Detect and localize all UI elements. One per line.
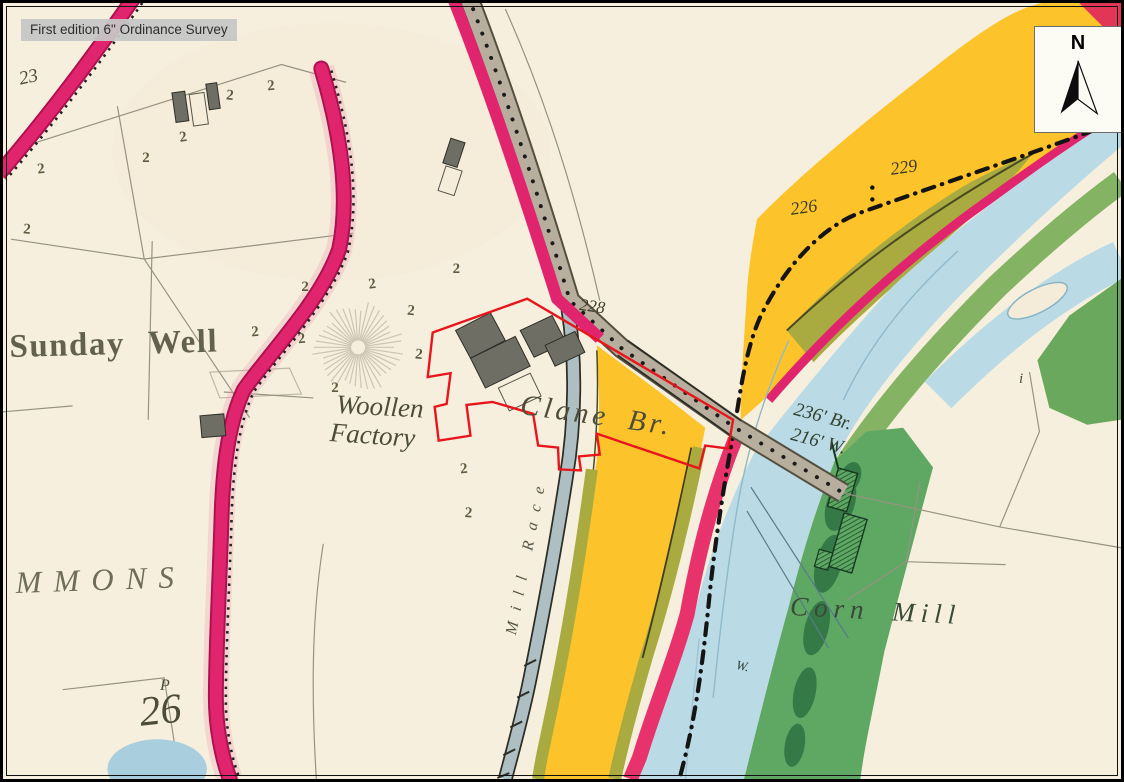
- north-arrow-icon: [1046, 53, 1110, 123]
- tree-icon: 2: [251, 324, 260, 340]
- tree-icon: 2: [142, 150, 149, 166]
- tree-icon: 2: [459, 461, 468, 478]
- tree-icon: 2: [464, 505, 473, 521]
- north-label: N: [1071, 33, 1085, 53]
- source-label: First edition 6" Ordinance Survey: [21, 19, 237, 41]
- tree-icon: 2: [406, 303, 415, 320]
- boundary-dot: [870, 197, 874, 201]
- tree-icon: 2: [331, 380, 338, 396]
- tree-icon: 2: [453, 261, 460, 277]
- tree-icon: 2: [267, 78, 276, 95]
- tree-icon: 2: [23, 221, 32, 238]
- map-canvas: 2222222222222222: [3, 3, 1121, 779]
- boundary-dot: [870, 185, 874, 189]
- north-arrow-box: N: [1034, 26, 1122, 133]
- map-figure: 2222222222222222 First edition 6" Ordina…: [0, 0, 1124, 782]
- house: [200, 414, 226, 438]
- tree-icon: 2: [301, 279, 308, 295]
